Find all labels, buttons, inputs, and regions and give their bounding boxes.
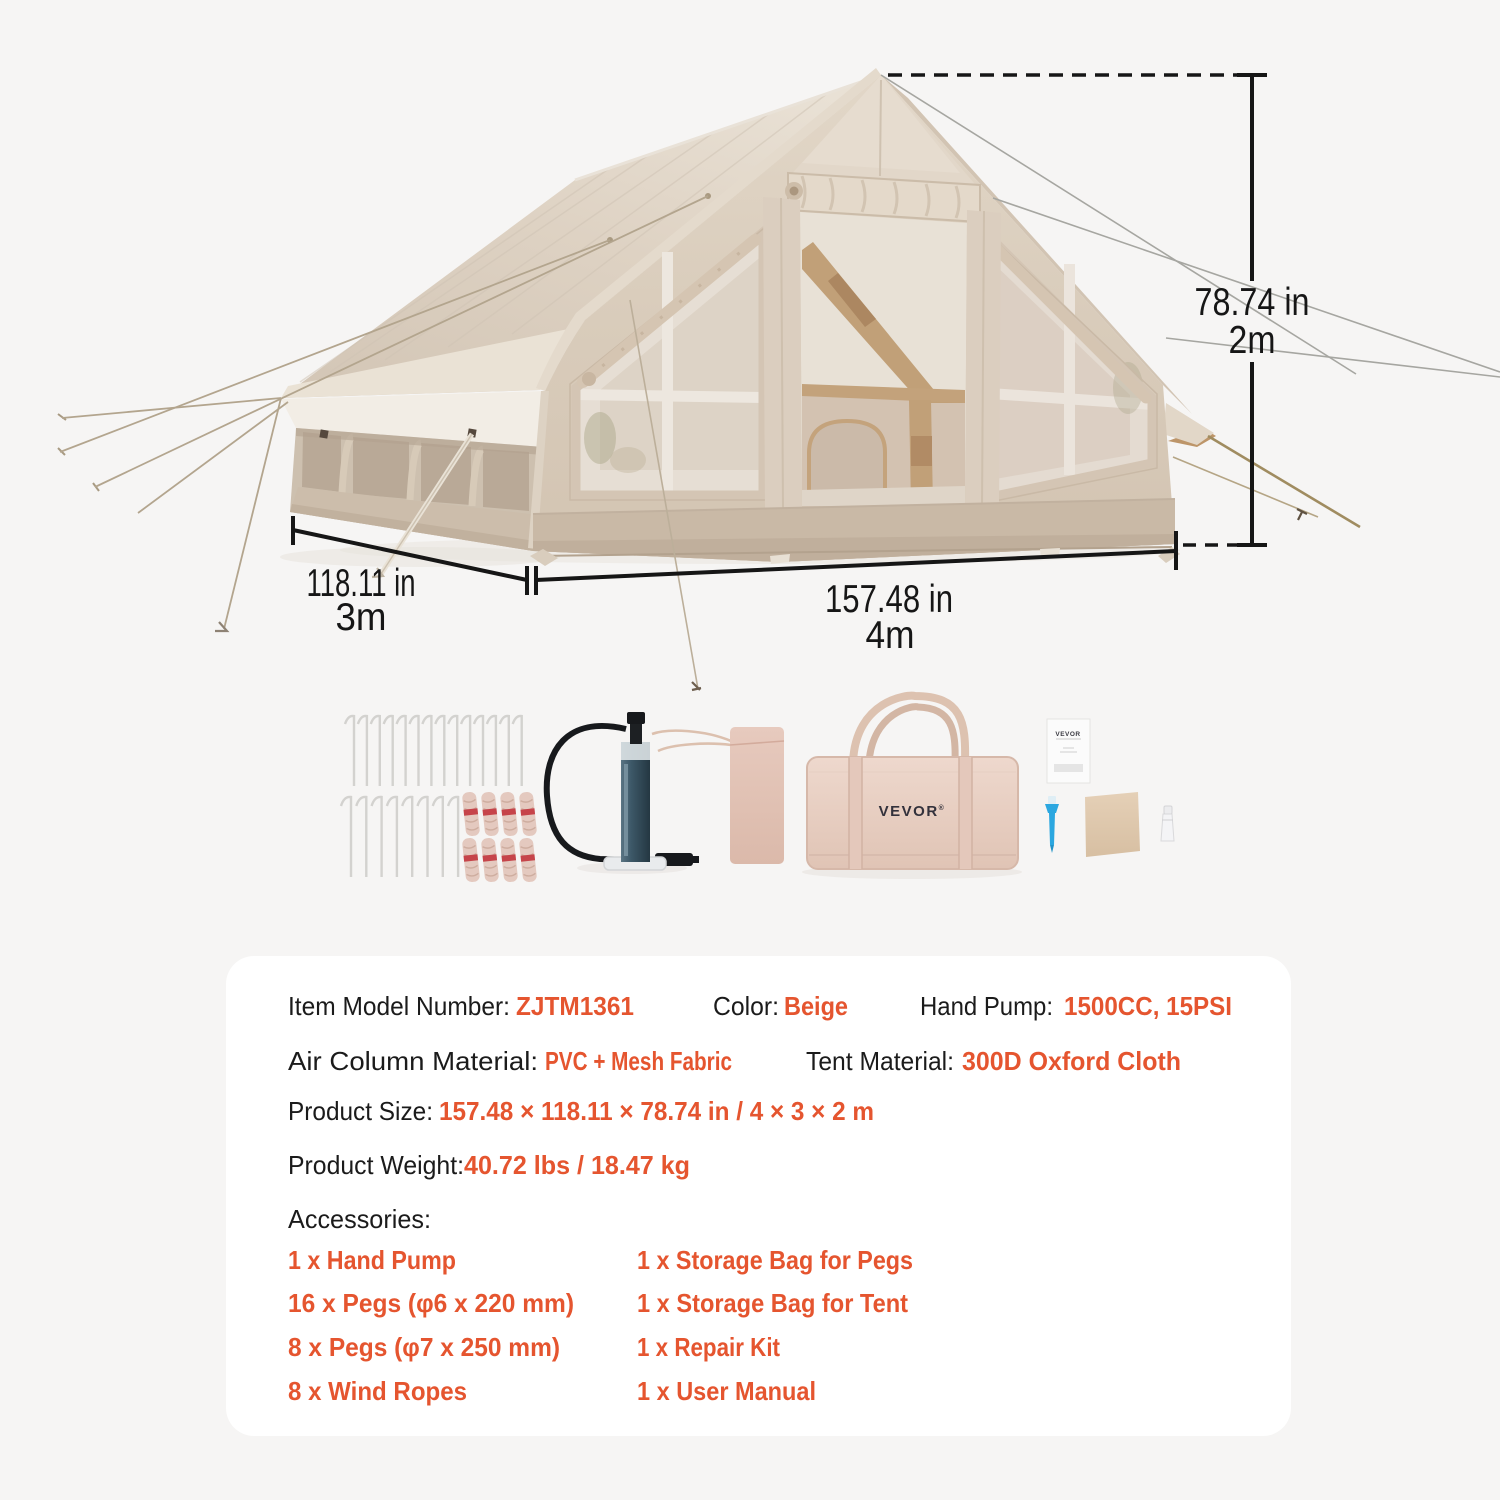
svg-text:16 x Pegs (φ6 x 220 mm): 16 x Pegs (φ6 x 220 mm) — [288, 1288, 574, 1318]
svg-text:Item Model Number:: Item Model Number: — [288, 991, 510, 1021]
svg-text:8 x Pegs (φ7 x 250 mm): 8 x Pegs (φ7 x 250 mm) — [288, 1332, 560, 1362]
svg-text:VEVOR®: VEVOR® — [879, 803, 946, 820]
svg-text:Color:: Color: — [713, 991, 779, 1021]
svg-text:2m: 2m — [1229, 319, 1276, 362]
svg-text:Hand Pump:: Hand Pump: — [920, 991, 1053, 1021]
svg-text:Product Weight:: Product Weight: — [288, 1150, 464, 1180]
svg-text:Accessories:: Accessories: — [288, 1204, 431, 1234]
svg-text:VEVOR: VEVOR — [1055, 731, 1080, 738]
svg-text:1 x Hand Pump: 1 x Hand Pump — [288, 1245, 456, 1275]
svg-text:Tent Material:: Tent Material: — [806, 1046, 954, 1076]
svg-text:40.72 lbs / 18.47 kg: 40.72 lbs / 18.47 kg — [464, 1150, 690, 1180]
svg-text:157.48 × 118.11 × 78.74 in / 4: 157.48 × 118.11 × 78.74 in / 4 × 3 × 2 m — [439, 1096, 874, 1126]
svg-text:Air Column Material:: Air Column Material: — [288, 1046, 538, 1076]
svg-text:1 x Repair Kit: 1 x Repair Kit — [637, 1332, 780, 1362]
svg-text:78.74 in: 78.74 in — [1195, 281, 1310, 324]
svg-text:1 x Storage Bag for Tent: 1 x Storage Bag for Tent — [637, 1288, 908, 1318]
svg-text:8 x Wind Ropes: 8 x Wind Ropes — [288, 1376, 467, 1406]
svg-text:PVC + Mesh Fabric: PVC + Mesh Fabric — [545, 1046, 732, 1076]
svg-text:4m: 4m — [866, 614, 915, 657]
svg-text:1500CC, 15PSI: 1500CC, 15PSI — [1064, 991, 1232, 1021]
svg-text:Product Size:: Product Size: — [288, 1096, 433, 1126]
svg-text:300D Oxford Cloth: 300D Oxford Cloth — [962, 1046, 1181, 1076]
svg-text:ZJTM1361: ZJTM1361 — [516, 991, 634, 1021]
svg-text:1 x Storage Bag for Pegs: 1 x Storage Bag for Pegs — [637, 1245, 913, 1275]
svg-text:3m: 3m — [336, 596, 387, 639]
svg-text:1 x User Manual: 1 x User Manual — [637, 1376, 816, 1406]
svg-text:Beige: Beige — [784, 991, 848, 1021]
